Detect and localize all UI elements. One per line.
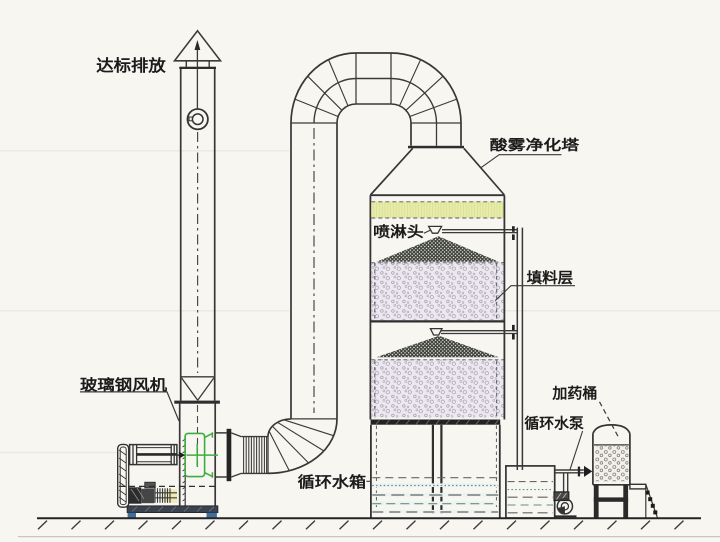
svg-text:达标排放: 达标排放 [96, 56, 167, 75]
svg-text:玻璃钢风机: 玻璃钢风机 [80, 376, 167, 394]
svg-text:加药桶: 加药桶 [551, 384, 597, 402]
svg-text:喷淋头: 喷淋头 [373, 223, 424, 241]
svg-text:循环水箱: 循环水箱 [298, 473, 367, 491]
svg-text:填料层: 填料层 [527, 269, 574, 287]
svg-text:酸雾净化塔: 酸雾净化塔 [490, 137, 580, 154]
svg-text:循环水泵: 循环水泵 [524, 415, 584, 433]
